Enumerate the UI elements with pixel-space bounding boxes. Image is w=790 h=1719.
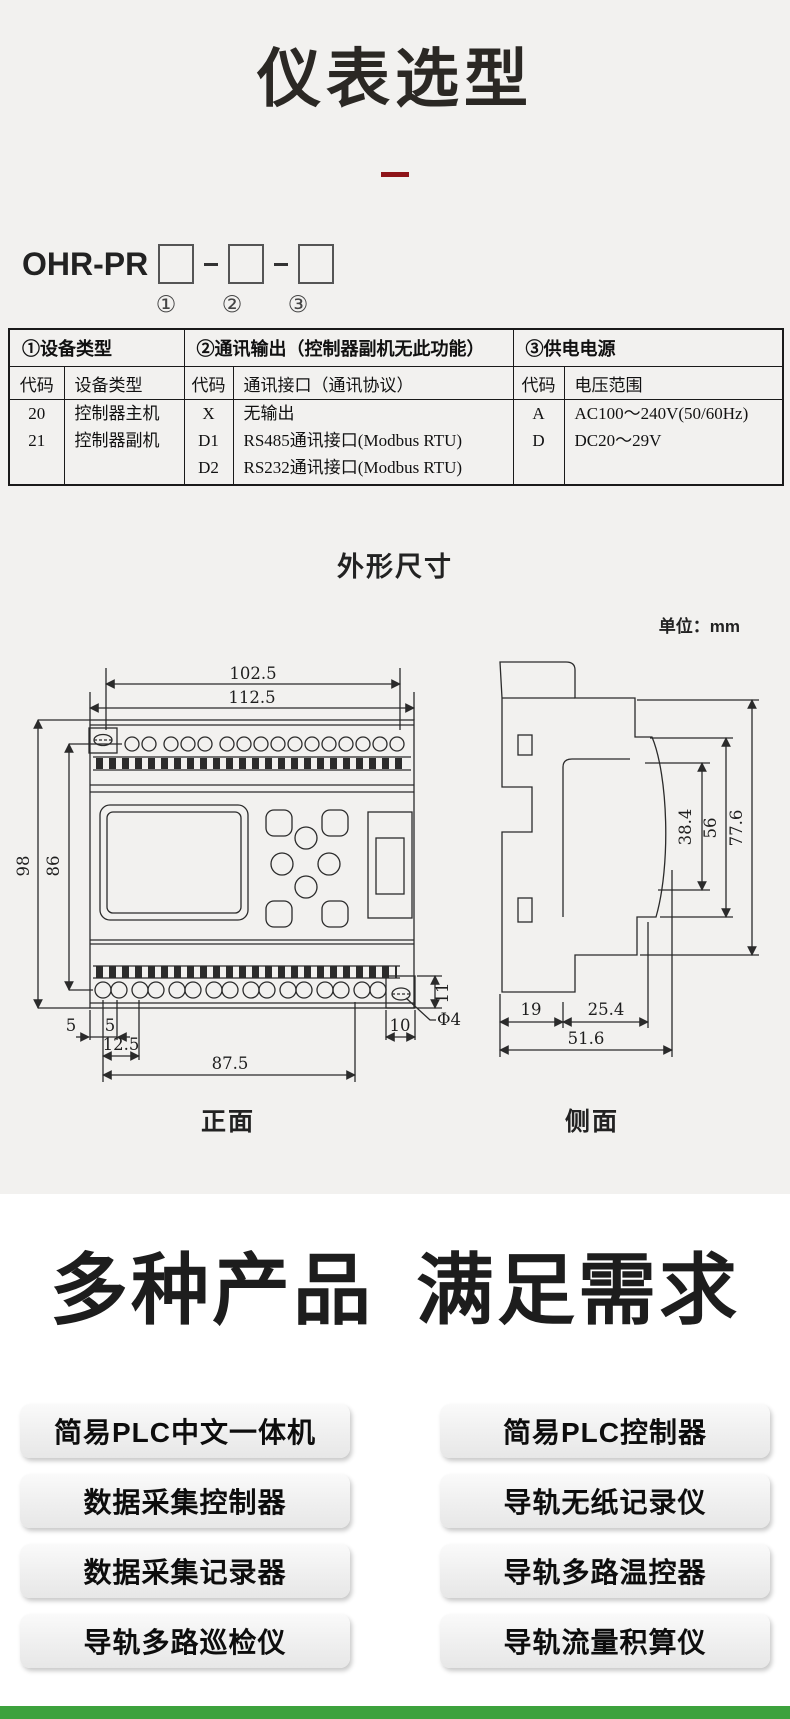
- side-view-drawing: 38.4 56 77.6 19 25.4 51.6: [500, 662, 759, 1057]
- col-header: 设备类型: [64, 367, 184, 400]
- dim-front-inner-height: 86: [44, 856, 63, 877]
- model-slot-2: [228, 244, 264, 284]
- table-body-row: 20 21 控制器主机 控制器副机 X D1 D2 无输出 RS485通讯接口(…: [9, 400, 783, 486]
- product-button-paperless-recorder[interactable]: 导轨无纸记录仪: [440, 1474, 770, 1528]
- dim-front-offset-b: 5: [105, 1016, 116, 1035]
- power-values: AC100～240V(50/60Hz) DC20～29V: [564, 400, 783, 486]
- product-button-flow-totalizer[interactable]: 导轨流量积算仪: [440, 1614, 770, 1668]
- spec-section: 仪表选型 OHR-PR ① ② ③ ①设备类型 ②通讯输出（控制器副机无此功能）…: [0, 0, 790, 1194]
- dim-side-depth-total: 51.6: [568, 1029, 605, 1048]
- dim-front-offset-c: 12.5: [103, 1035, 140, 1054]
- col-header: 电压范围: [564, 367, 783, 400]
- comm-values: 无输出 RS485通讯接口(Modbus RTU) RS232通讯接口(Modb…: [233, 400, 513, 486]
- dim-side-depth-b: 25.4: [588, 1000, 625, 1019]
- col-header: 代码: [9, 367, 64, 400]
- col-header: 通讯接口（通讯协议）: [233, 367, 513, 400]
- device-values: 控制器主机 控制器副机: [64, 400, 184, 486]
- dim-side-height-mid: 56: [701, 818, 720, 839]
- model-marker-2: ②: [217, 292, 247, 318]
- page-title: 仪表选型: [0, 28, 790, 120]
- dim-front-outer-width: 112.5: [228, 688, 275, 707]
- product-button-plc-allinone[interactable]: 简易PLC中文一体机: [20, 1404, 350, 1458]
- col-header: 代码: [184, 367, 233, 400]
- table-subheader-row: 代码 设备类型 代码 通讯接口（通讯协议） 代码 电压范围: [9, 367, 783, 400]
- comm-codes: X D1 D2: [184, 400, 233, 486]
- product-button-temp-controller[interactable]: 导轨多路温控器: [440, 1544, 770, 1598]
- model-slot-3: [298, 244, 334, 284]
- products-heading-part1: 多种产品: [50, 1246, 374, 1334]
- model-marker-3: ③: [283, 292, 313, 318]
- dimension-drawing: 102.5 112.5 98 86: [0, 570, 790, 1095]
- product-button-plc-controller[interactable]: 简易PLC控制器: [440, 1404, 770, 1458]
- dim-front-offset-a: 5: [66, 1016, 77, 1035]
- power-codes: A D: [513, 400, 564, 486]
- model-prefix: OHR-PR: [22, 246, 148, 283]
- model-marker-1: ①: [151, 292, 181, 318]
- group-title-device: ①设备类型: [9, 329, 184, 367]
- product-button-daq-controller[interactable]: 数据采集控制器: [20, 1474, 350, 1528]
- group-title-comm: ②通讯输出（控制器副机无此功能）: [184, 329, 513, 367]
- dim-front-hole-height: 11: [433, 983, 452, 1004]
- page: 仪表选型 OHR-PR ① ② ③ ①设备类型 ②通讯输出（控制器副机无此功能）…: [0, 0, 790, 1719]
- front-view-drawing: 102.5 112.5 98 86: [14, 664, 461, 1082]
- products-heading: 多种产品满足需求: [0, 1228, 790, 1340]
- products-heading-part2: 满足需求: [416, 1246, 740, 1334]
- col-header: 代码: [513, 367, 564, 400]
- product-button-daq-recorder[interactable]: 数据采集记录器: [20, 1544, 350, 1598]
- model-slot-1: [158, 244, 194, 284]
- model-dash-1: [204, 263, 218, 266]
- dim-side-height-total: 77.6: [727, 810, 746, 847]
- dim-front-inner-width: 102.5: [229, 664, 276, 683]
- side-view-label: 侧面: [512, 1102, 672, 1138]
- dim-front-terminal-span: 87.5: [212, 1054, 249, 1073]
- front-view-label: 正面: [148, 1102, 308, 1138]
- table-group-title-row: ①设备类型 ②通讯输出（控制器副机无此功能） ③供电电源: [9, 329, 783, 367]
- product-button-rail-scanner[interactable]: 导轨多路巡检仪: [20, 1614, 350, 1668]
- model-code-row: OHR-PR: [22, 244, 334, 284]
- title-divider: [381, 172, 409, 177]
- dim-side-height-inner: 38.4: [676, 809, 695, 846]
- dim-front-hole-dia: Φ4: [437, 1010, 461, 1029]
- footer-divider-bar: [0, 1706, 790, 1719]
- dim-front-outer-height: 98: [14, 856, 33, 877]
- device-codes: 20 21: [9, 400, 64, 486]
- selection-table: ①设备类型 ②通讯输出（控制器副机无此功能） ③供电电源 代码 设备类型 代码 …: [8, 328, 784, 486]
- dim-front-hole-offset: 10: [390, 1016, 411, 1035]
- group-title-power: ③供电电源: [513, 329, 783, 367]
- dim-side-depth-a: 19: [521, 1000, 542, 1019]
- model-dash-2: [274, 263, 288, 266]
